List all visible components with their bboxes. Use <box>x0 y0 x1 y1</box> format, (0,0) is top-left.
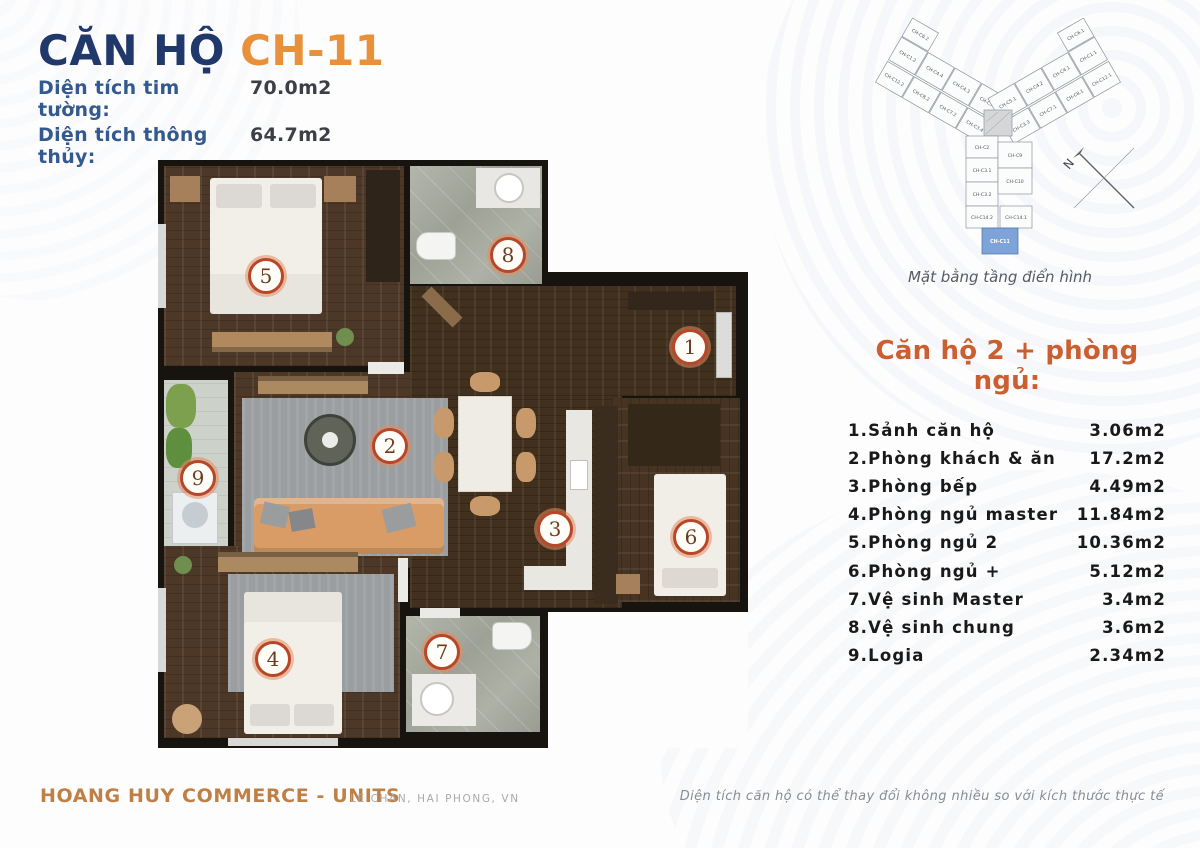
svg-text:CH-C3.2: CH-C3.2 <box>973 192 992 198</box>
badge-logia: 9 <box>180 460 216 496</box>
room-row: 3.Phòng bếp4.49m2 <box>848 472 1166 500</box>
project-location: LE CHAN, HAI PHONG, VN <box>350 793 520 805</box>
badge-bathroom-shared: 8 <box>490 237 526 273</box>
cushion <box>288 508 315 532</box>
room-row: 6.Phòng ngủ +5.12m2 <box>848 557 1166 585</box>
badge-bedroom-master: 4 <box>255 641 291 677</box>
badge-living-dining: 2 <box>372 428 408 464</box>
badge-bedroom-plus: 6 <box>673 519 709 555</box>
window <box>158 224 166 308</box>
svg-text:CH-C3.1: CH-C3.1 <box>973 168 992 174</box>
table-plant <box>322 432 338 448</box>
room-label: 4.Phòng ngủ master <box>848 505 1058 524</box>
keyplan-unit: CH-C14.1 <box>1000 206 1032 228</box>
keyplan-unit: CH-C2 <box>966 136 998 158</box>
room-row: 8.Vệ sinh chung3.6m2 <box>848 613 1166 641</box>
brochure-page: CĂN HỘ CH-11 Diện tích tim tường: 70.0m2… <box>0 0 1200 848</box>
room-row: 4.Phòng ngủ master11.84m2 <box>848 501 1166 529</box>
room-label: 2.Phòng khách & ăn <box>848 449 1056 468</box>
keyplan-unit: CH-C3.1 <box>966 158 998 182</box>
kitchen-counter <box>524 566 592 590</box>
room-area: 5.12m2 <box>1089 562 1166 581</box>
room-label: 3.Phòng bếp <box>848 477 978 496</box>
tv-dresser <box>218 552 358 572</box>
keyplan-unit: CH-C10 <box>998 168 1032 194</box>
area-gross-label: Diện tích tim tường: <box>38 77 250 121</box>
building-notch <box>548 612 748 748</box>
window <box>158 588 166 672</box>
tv-cabinet <box>258 376 368 394</box>
washer-door <box>182 502 208 528</box>
pillow <box>250 704 290 726</box>
pillow <box>294 704 334 726</box>
badge-bathroom-master: 7 <box>424 634 460 670</box>
toilet <box>416 232 456 260</box>
room-area: 3.4m2 <box>1102 590 1166 609</box>
building-notch <box>548 160 748 272</box>
kitchen-tall-cabinet <box>594 406 618 604</box>
svg-text:CH-C11: CH-C11 <box>990 239 1010 245</box>
room-area: 2.34m2 <box>1089 646 1166 665</box>
room-area: 10.36m2 <box>1077 533 1166 552</box>
floor-plan: 1 2 3 4 5 6 7 8 9 <box>158 160 748 748</box>
room-area: 3.6m2 <box>1102 618 1166 637</box>
area-gross-row: Diện tích tim tường: 70.0m2 <box>38 77 384 121</box>
room-schedule-heading: Căn hộ 2 + phòng ngủ: <box>848 336 1166 396</box>
door-bedroom-master <box>398 558 408 602</box>
pillow <box>216 184 262 208</box>
keyplan-svg: CH-C6.2 CH-C1.2 CH-C4.4 CH-C4.3 CH-C5.2 … <box>848 12 1152 264</box>
tv-dresser <box>212 332 332 352</box>
dining-chair <box>434 408 454 438</box>
compass-n-label: N <box>1061 156 1077 172</box>
dining-chair <box>516 408 536 438</box>
page-title: CĂN HỘ CH-11 <box>38 28 384 74</box>
badge-kitchen: 3 <box>537 511 573 547</box>
dining-chair <box>434 452 454 482</box>
stool <box>172 704 202 734</box>
dining-chair <box>470 496 500 516</box>
dining-table <box>458 396 512 492</box>
nightstand <box>616 574 640 594</box>
pillow <box>270 184 316 208</box>
room-area: 3.06m2 <box>1089 421 1166 440</box>
keyplan-unit: CH-C14.2 <box>966 206 998 228</box>
wardrobe <box>628 404 720 466</box>
room-area: 11.84m2 <box>1077 505 1166 524</box>
toilet <box>492 622 532 650</box>
area-net-label: Diện tích thông thủy: <box>38 124 250 168</box>
svg-text:CH-C14.1: CH-C14.1 <box>1005 215 1027 221</box>
disclaimer-text: Diện tích căn hộ có thể thay đổi không n… <box>680 789 1164 804</box>
plant <box>166 384 196 428</box>
svg-text:CH-C14.2: CH-C14.2 <box>971 215 993 221</box>
kitchen-sink <box>570 460 588 490</box>
room-area: 17.2m2 <box>1089 449 1166 468</box>
plant <box>174 556 192 574</box>
area-gross-value: 70.0m2 <box>250 77 384 121</box>
header: CĂN HỘ CH-11 Diện tích tim tường: 70.0m2… <box>38 28 384 168</box>
room-label: 7.Vệ sinh Master <box>848 590 1024 609</box>
shoe-cabinet <box>628 292 714 310</box>
svg-text:CH-C9: CH-C9 <box>1008 153 1023 159</box>
room-row: 5.Phòng ngủ 210.36m2 <box>848 529 1166 557</box>
compass-icon: N <box>1061 147 1134 208</box>
pillow <box>662 568 718 588</box>
room-row: 2.Phòng khách & ăn17.2m2 <box>848 444 1166 472</box>
badge-bedroom-2: 5 <box>248 258 284 294</box>
svg-text:CH-C2: CH-C2 <box>975 145 990 151</box>
door-bathroom-master <box>420 608 460 618</box>
badge-entry-hall: 1 <box>672 329 708 365</box>
dining-chair <box>470 372 500 392</box>
keyplan: CH-C6.2 CH-C1.2 CH-C4.4 CH-C4.3 CH-C5.2 … <box>848 12 1152 286</box>
area-net-value: 64.7m2 <box>250 124 384 168</box>
sink-basin <box>420 682 454 716</box>
area-net-row: Diện tích thông thủy: 64.7m2 <box>38 124 384 168</box>
keyplan-caption: Mặt bằng tầng điển hình <box>848 268 1152 286</box>
nightstand <box>170 176 200 202</box>
keyplan-unit: CH-C3.2 <box>966 182 998 206</box>
keyplan-unit: CH-C9 <box>998 142 1032 168</box>
room-label: 5.Phòng ngủ 2 <box>848 533 998 552</box>
room-label: 8.Vệ sinh chung <box>848 618 1015 637</box>
door-bedroom-2 <box>368 362 404 374</box>
room-row: 9.Logia2.34m2 <box>848 642 1166 670</box>
plant <box>336 328 354 346</box>
svg-text:CH-C10: CH-C10 <box>1006 179 1023 185</box>
unit-title-prefix: CĂN HỘ <box>38 26 225 75</box>
wardrobe <box>366 170 400 282</box>
nightstand <box>324 176 356 202</box>
unit-code: CH-11 <box>240 26 384 75</box>
room-label: 6.Phòng ngủ + <box>848 562 1001 581</box>
sink-basin <box>494 173 524 203</box>
room-label: 1.Sảnh căn hộ <box>848 421 995 440</box>
entrance-door <box>716 312 732 378</box>
dining-chair <box>516 452 536 482</box>
keyplan-unit-highlighted: CH-C11 <box>982 228 1018 254</box>
room-label: 9.Logia <box>848 646 925 665</box>
room-row: 1.Sảnh căn hộ3.06m2 <box>848 416 1166 444</box>
room-area: 4.49m2 <box>1089 477 1166 496</box>
room-schedule: Căn hộ 2 + phòng ngủ: 1.Sảnh căn hộ3.06m… <box>848 336 1166 670</box>
brand-name: HOANG HUY COMMERCE - UNITS <box>40 785 400 807</box>
room-row: 7.Vệ sinh Master3.4m2 <box>848 585 1166 613</box>
window <box>228 738 338 746</box>
